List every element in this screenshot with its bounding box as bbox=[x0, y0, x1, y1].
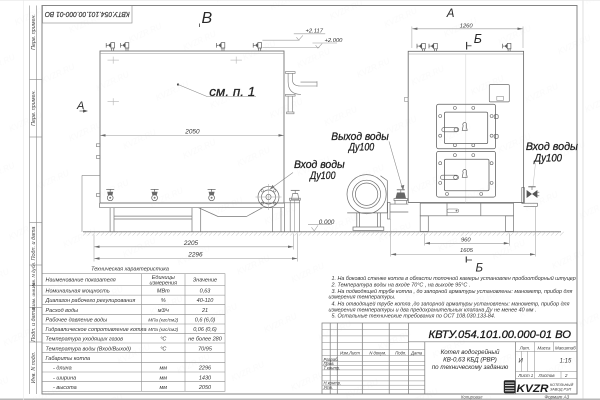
svg-text:МВт: МВт bbox=[157, 289, 170, 295]
svg-text:1. На боковой стенке котла в: 1. На боковой стенке котла в области топ… bbox=[332, 275, 576, 282]
svg-text:не более 280: не более 280 bbox=[188, 337, 223, 343]
svg-text:0.000: 0.000 bbox=[319, 219, 335, 226]
svg-text:м3/ч: м3/ч bbox=[158, 308, 169, 314]
svg-text:0,6 (6,0): 0,6 (6,0) bbox=[195, 318, 216, 324]
svg-text:Утв.: Утв. bbox=[324, 385, 334, 390]
svg-text:Б: Б bbox=[474, 32, 482, 46]
svg-text:Ду100: Ду100 bbox=[533, 153, 563, 165]
svg-text:Перв. примен.: Перв. примен. bbox=[31, 90, 37, 126]
svg-text:по техническому заданию: по техническому заданию bbox=[432, 364, 509, 371]
svg-text:0,06 (0,6): 0,06 (0,6) bbox=[193, 327, 217, 333]
svg-text:2050: 2050 bbox=[198, 385, 212, 391]
svg-text:ЗАВОД РЭП: ЗАВОД РЭП bbox=[550, 388, 571, 392]
svg-text:КВТУ.054.101.00.000-01 ВО: КВТУ.054.101.00.000-01 ВО bbox=[429, 329, 572, 341]
svg-text:мм: мм bbox=[160, 375, 168, 381]
svg-text:МПа (кгс/см2): МПа (кгс/см2) bbox=[148, 318, 178, 323]
svg-text:Температура уходящих газов: Температура уходящих газов bbox=[46, 337, 124, 343]
svg-text:КВТУ.054.101.00.000-01 ВО: КВТУ.054.101.00.000-01 ВО bbox=[45, 10, 130, 19]
svg-text:МПа (кгс/см2): МПа (кгс/см2) bbox=[148, 327, 178, 332]
svg-text:Т.контр.: Т.контр. bbox=[324, 365, 341, 370]
svg-text:2: 2 bbox=[564, 373, 568, 378]
svg-text:40-110: 40-110 bbox=[197, 298, 215, 304]
svg-text:+2.117: +2.117 bbox=[306, 28, 324, 34]
svg-text:KVZR: KVZR bbox=[517, 383, 550, 395]
svg-text:°С: °С bbox=[160, 346, 166, 352]
svg-text:Б: Б bbox=[476, 263, 484, 275]
svg-text:КОТЕЛЬНЫЙ: КОТЕЛЬНЫЙ bbox=[550, 383, 574, 387]
svg-text:1260: 1260 bbox=[460, 23, 474, 29]
svg-text:Номинальная мощность: Номинальная мощность bbox=[46, 289, 110, 295]
svg-text:мм: мм bbox=[160, 385, 168, 391]
svg-text:Лит.: Лит. bbox=[519, 345, 530, 350]
svg-text:Подп.: Подп. bbox=[395, 351, 406, 356]
svg-text:А: А bbox=[446, 8, 455, 20]
svg-text:Дата: Дата bbox=[410, 351, 423, 356]
svg-text:мм: мм bbox=[160, 366, 168, 372]
svg-text:2296: 2296 bbox=[187, 252, 203, 259]
svg-text:N докум.: N докум. bbox=[369, 351, 386, 356]
svg-text:Изм.Лист: Изм.Лист bbox=[340, 351, 360, 356]
svg-text:%: % bbox=[161, 298, 166, 304]
svg-text:Ду100: Ду100 bbox=[308, 170, 336, 182]
svg-text:Габариты котла: Габариты котла bbox=[46, 356, 91, 362]
svg-text:4. На отводящей трубе котла ,: 4. На отводящей трубе котла ,до запорной… bbox=[332, 300, 570, 307]
svg-text:Вход воды: Вход воды bbox=[294, 159, 345, 171]
svg-text:Копировал: Копировал bbox=[461, 394, 483, 399]
svg-text:Масса: Масса bbox=[538, 345, 552, 350]
svg-text:- длина: - длина bbox=[53, 366, 72, 372]
svg-text:Наименование показателя: Наименование показателя bbox=[46, 278, 116, 284]
svg-text:0,63: 0,63 bbox=[200, 289, 212, 295]
svg-text:Листов: Листов bbox=[538, 373, 556, 378]
svg-text:Котел водогрейный: Котел водогрейный bbox=[441, 349, 500, 356]
svg-text:960: 960 bbox=[461, 237, 471, 243]
svg-text:Перв. примен.: Перв. примен. bbox=[31, 14, 37, 50]
svg-text:Рабочее давление воды: Рабочее давление воды bbox=[46, 318, 108, 324]
svg-text:см. п. 1: см. п. 1 bbox=[209, 84, 255, 99]
svg-text:Лист: Лист bbox=[517, 373, 530, 378]
svg-text:1:15: 1:15 bbox=[560, 359, 572, 365]
svg-text:И: И bbox=[519, 359, 524, 365]
svg-text:Техническая характеристика: Техническая характеристика bbox=[91, 266, 169, 272]
svg-text:Подп. и дата: Подп. и дата bbox=[31, 308, 37, 342]
svg-text:Взам. инв. N: Взам. инв. N bbox=[31, 282, 36, 309]
svg-text:Значение: Значение bbox=[193, 278, 217, 284]
svg-text:Вход воды: Вход воды bbox=[526, 141, 578, 153]
svg-text:Формат А3: Формат А3 bbox=[545, 394, 570, 399]
svg-text:Инв. N подл.: Инв. N подл. bbox=[31, 352, 37, 384]
svg-text:В: В bbox=[202, 10, 213, 27]
svg-text:°С: °С bbox=[160, 337, 166, 343]
svg-text:Ду100: Ду100 bbox=[347, 142, 375, 154]
svg-text:2205: 2205 bbox=[183, 240, 199, 247]
svg-text:70/95: 70/95 bbox=[198, 346, 213, 352]
svg-text:Подп. и дата: Подп. и дата bbox=[31, 227, 37, 261]
svg-text:+2.000: +2.000 bbox=[325, 38, 344, 44]
svg-text:- высота: - высота bbox=[53, 385, 77, 391]
svg-text:5. Остальные технические треб: 5. Остальные технические требования по О… bbox=[332, 313, 496, 319]
svg-text:21: 21 bbox=[201, 308, 208, 314]
svg-text:2296: 2296 bbox=[198, 366, 212, 372]
svg-text:Диапазон рабочего регулировани: Диапазон рабочего регулирования bbox=[45, 298, 136, 304]
svg-text:измерения: измерения bbox=[150, 280, 178, 286]
svg-text:1605: 1605 bbox=[460, 248, 474, 254]
svg-text:1430: 1430 bbox=[199, 375, 212, 381]
svg-text:измерения температуры.: измерения температуры. bbox=[329, 295, 396, 301]
svg-text:Гидравлическое сопротивление к: Гидравлическое сопротивление котла bbox=[46, 327, 147, 333]
svg-text:КВ-0,63 КБД (РВР): КВ-0,63 КБД (РВР) bbox=[443, 356, 497, 363]
svg-text:- ширина: - ширина bbox=[53, 375, 76, 381]
svg-text:Расход воды: Расход воды bbox=[46, 308, 79, 314]
svg-text:2. Температура воды на входе: 2. Температура воды на входе 70°С , на в… bbox=[331, 283, 471, 289]
svg-text:Масштаб: Масштаб bbox=[555, 345, 576, 350]
svg-text:2050: 2050 bbox=[184, 129, 200, 136]
svg-text:Температура воды (Вход/Выход): Температура воды (Вход/Выход) bbox=[46, 346, 132, 352]
